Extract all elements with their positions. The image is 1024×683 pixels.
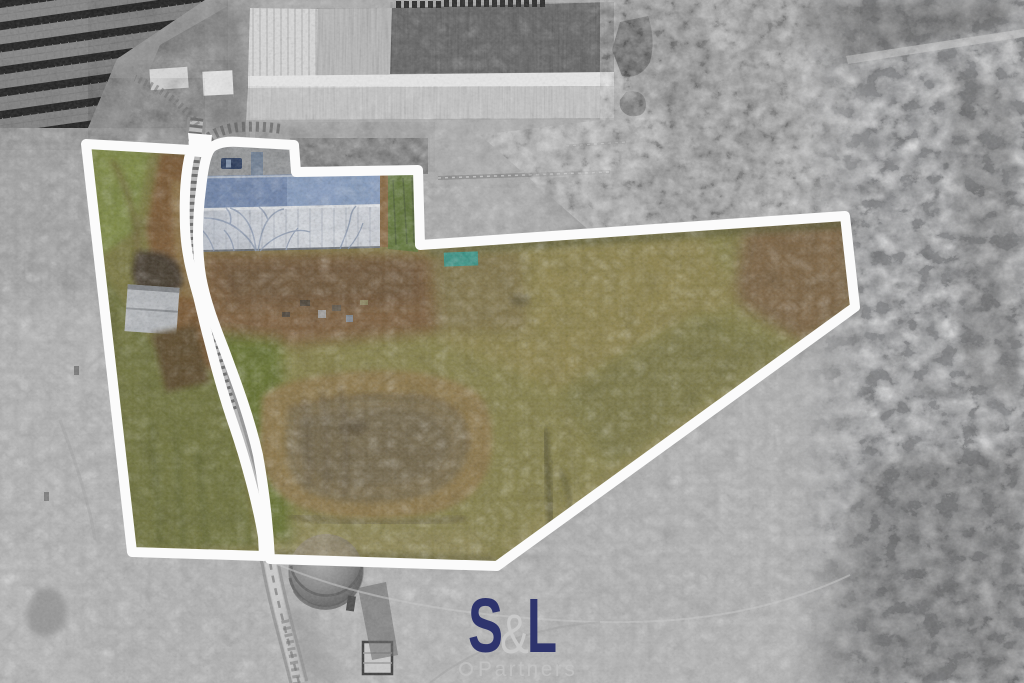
svg-text:&: & <box>500 602 529 665</box>
svg-text:L: L <box>527 583 557 669</box>
svg-text:Partners: Partners <box>478 658 577 681</box>
svg-text:S: S <box>468 583 503 669</box>
